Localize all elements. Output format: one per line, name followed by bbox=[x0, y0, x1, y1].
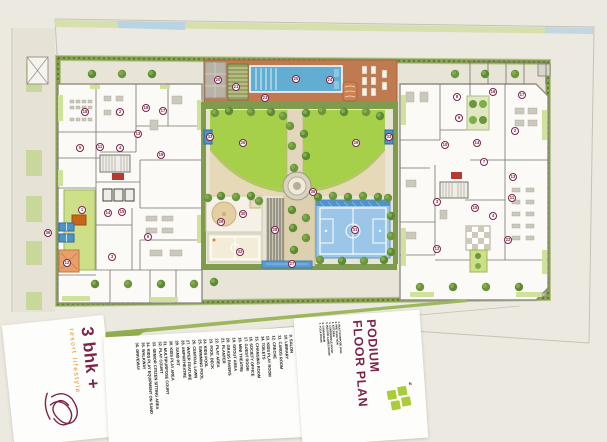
plan-marker: 7 bbox=[480, 158, 488, 166]
tree-icon bbox=[88, 70, 96, 78]
lotus-icon bbox=[38, 381, 89, 432]
tree-icon bbox=[210, 278, 218, 286]
tree-icon bbox=[387, 212, 395, 220]
plan-marker: 31 bbox=[351, 226, 359, 234]
plan-marker: 15 bbox=[118, 208, 126, 216]
plan-marker: 20 bbox=[214, 76, 222, 84]
tree-icon bbox=[451, 70, 459, 78]
plan-marker: 22 bbox=[504, 236, 512, 244]
plan-marker: 17 bbox=[159, 107, 167, 115]
plan-marker: 14 bbox=[104, 209, 112, 217]
tree-icon bbox=[190, 280, 198, 288]
legend-side-list: 1. MULTI PURPOSE HALL2. PRE FUNCTION3. K… bbox=[318, 321, 349, 442]
plan-marker: 12 bbox=[433, 245, 441, 253]
tree-icon bbox=[449, 283, 457, 291]
brand-name: 3 bhk + bbox=[77, 326, 102, 380]
tree-icon bbox=[300, 130, 308, 138]
tree-icon bbox=[290, 246, 298, 254]
plan-marker: 25 bbox=[292, 75, 300, 83]
north-logo-icon: N bbox=[384, 383, 416, 413]
tree-icon bbox=[374, 193, 382, 201]
plan-marker: 6 bbox=[144, 233, 152, 241]
plan-marker: 15 bbox=[471, 204, 479, 212]
tree-icon bbox=[387, 232, 395, 240]
plan-marker: 3 bbox=[433, 198, 441, 206]
tree-icon bbox=[362, 108, 370, 116]
plan-marker: 11 bbox=[508, 194, 516, 202]
plan-marker: 4 bbox=[116, 144, 124, 152]
tree-icon bbox=[387, 248, 395, 256]
plan-marker: 21 bbox=[232, 83, 240, 91]
tree-icon bbox=[286, 122, 294, 130]
page-title: PODIUM FLOOR PLAN bbox=[349, 319, 386, 442]
tree-icon bbox=[232, 193, 240, 201]
plan-marker: 10 bbox=[441, 141, 449, 149]
north-label: N bbox=[408, 381, 412, 386]
tree-icon bbox=[344, 193, 352, 201]
brochure-page: 2021252423262633333528272930323136182161… bbox=[0, 0, 607, 442]
brand-card: 3 bhk + resort lifestyle bbox=[2, 315, 116, 442]
tree-icon bbox=[482, 283, 490, 291]
plan-marker: 13 bbox=[134, 130, 142, 138]
tree-icon bbox=[481, 70, 489, 78]
tree-icon bbox=[217, 192, 225, 200]
tree-icon bbox=[247, 192, 255, 200]
tree-icon bbox=[279, 112, 287, 120]
tree-icon bbox=[91, 280, 99, 288]
plan-marker: 24 bbox=[326, 76, 334, 84]
tree-icon bbox=[302, 234, 310, 242]
tree-icon bbox=[148, 70, 156, 78]
plan-marker: 23 bbox=[261, 94, 269, 102]
tree-icon bbox=[511, 70, 519, 78]
tree-icon bbox=[118, 70, 126, 78]
plan-marker: 26 bbox=[352, 139, 360, 147]
plan-marker: 12 bbox=[63, 259, 71, 267]
plan-marker: 30 bbox=[239, 210, 247, 218]
plan-marker: 33 bbox=[385, 133, 393, 141]
tree-icon bbox=[288, 206, 296, 214]
plan-marker: 33 bbox=[206, 133, 214, 141]
tree-icon bbox=[360, 257, 368, 265]
plan-marker: 11 bbox=[96, 143, 104, 151]
tree-icon bbox=[359, 192, 367, 200]
tree-icon bbox=[204, 194, 212, 202]
tree-icon bbox=[318, 107, 326, 115]
tree-icon bbox=[329, 192, 337, 200]
tree-icon bbox=[288, 142, 296, 150]
plan-marker: 13 bbox=[509, 173, 517, 181]
tree-icon bbox=[340, 108, 348, 116]
tree-icon bbox=[211, 109, 219, 117]
plan-marker: 36 bbox=[44, 229, 52, 237]
tree-icon bbox=[302, 109, 310, 117]
plan-marker: 9 bbox=[455, 114, 463, 122]
tree-icon bbox=[380, 256, 388, 264]
tree-icon bbox=[225, 107, 233, 115]
tree-icon bbox=[302, 152, 310, 160]
tree-icon bbox=[255, 197, 263, 205]
plan-marker: 32 bbox=[236, 248, 244, 256]
plan-marker: 5 bbox=[76, 144, 84, 152]
plan-marker: 3 bbox=[108, 253, 116, 261]
tree-icon bbox=[157, 280, 165, 288]
tree-icon bbox=[124, 280, 132, 288]
plan-marker: 16 bbox=[489, 88, 497, 96]
tree-icon bbox=[290, 164, 298, 172]
plan-marker: 29 bbox=[217, 218, 225, 226]
plan-marker: 8 bbox=[453, 93, 461, 101]
title-card: PODIUM FLOOR PLAN 1. MULTI PURPOSE HALL2… bbox=[294, 310, 429, 442]
plan-marker: 1 bbox=[78, 206, 86, 214]
plan-marker: 2 bbox=[511, 127, 519, 135]
tree-icon bbox=[416, 283, 424, 291]
tree-icon bbox=[267, 108, 275, 116]
plan-marker: 19 bbox=[157, 151, 165, 159]
tree-icon bbox=[376, 112, 384, 120]
plan-marker: 14 bbox=[473, 139, 481, 147]
plan-marker: 2 bbox=[116, 108, 124, 116]
plan-marker: 28 bbox=[271, 226, 279, 234]
tree-icon bbox=[338, 257, 346, 265]
tree-icon bbox=[247, 108, 255, 116]
plan-marker: 27 bbox=[288, 260, 296, 268]
tree-icon bbox=[384, 194, 392, 202]
plan-marker: 35 bbox=[309, 188, 317, 196]
plan-marker: 26 bbox=[239, 139, 247, 147]
tree-icon bbox=[316, 256, 324, 264]
plan-marker: 16 bbox=[142, 104, 150, 112]
plan-marker: 18 bbox=[81, 108, 89, 116]
tree-icon bbox=[289, 224, 297, 232]
plan-marker: 4 bbox=[489, 212, 497, 220]
tree-icon bbox=[302, 214, 310, 222]
plan-marker: 17 bbox=[518, 91, 526, 99]
tree-icon bbox=[515, 283, 523, 291]
